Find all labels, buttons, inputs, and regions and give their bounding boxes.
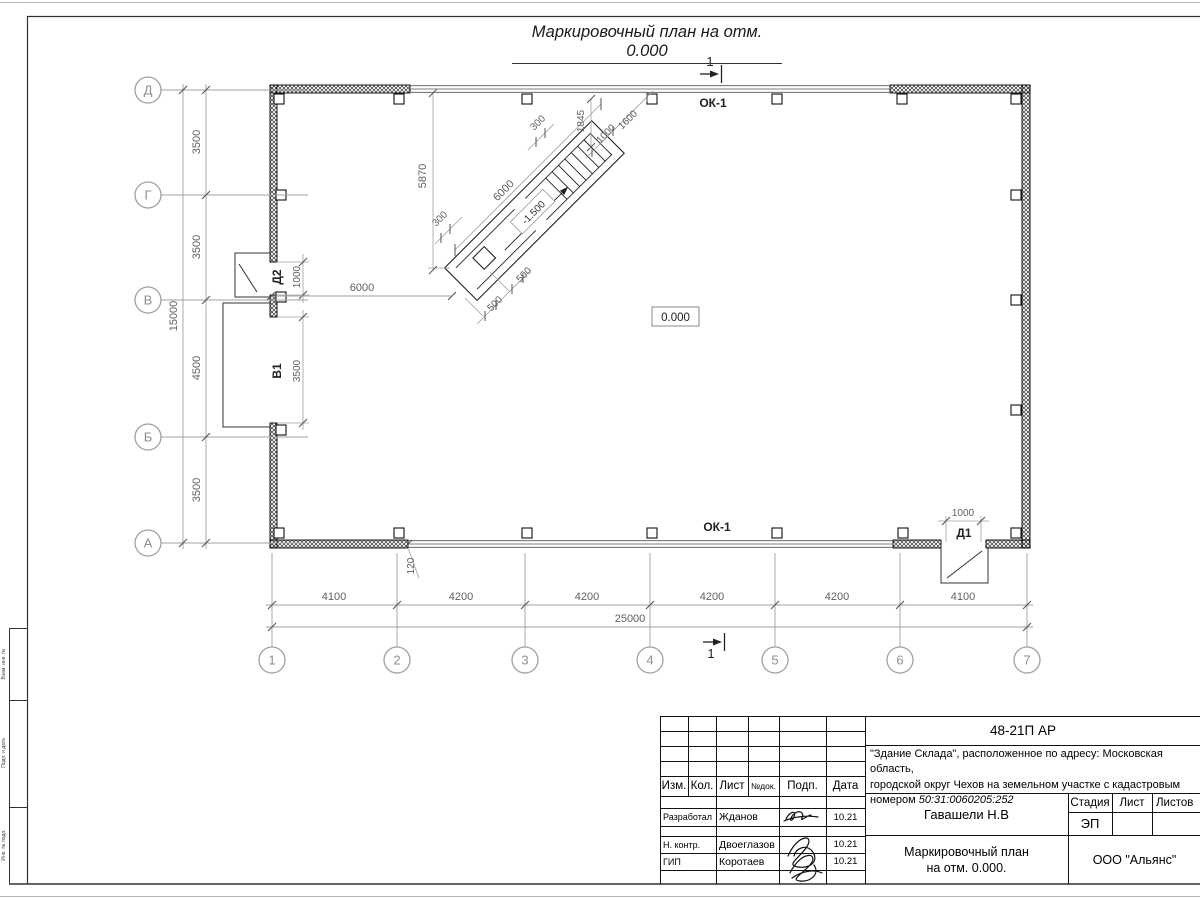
axis-row-d: Д xyxy=(144,83,153,98)
stairs-pit: -1.500 xyxy=(445,121,625,301)
axis-col-4: 4 xyxy=(646,653,653,668)
axis-col-7: 7 xyxy=(1023,653,1030,668)
tb-sheets-label: Листов xyxy=(1152,793,1200,812)
offset-120: 120 xyxy=(404,540,419,578)
axis-col-3: 3 xyxy=(521,653,528,668)
signature-gip xyxy=(790,855,822,881)
tb-name-gip: Коротаев xyxy=(716,853,782,870)
margin-strip-labels: Взам. инв. № Подп. и дата Инв. № подл. xyxy=(1,649,7,861)
axis-row-a: А xyxy=(144,536,153,551)
columns xyxy=(274,94,1021,538)
window-band-top xyxy=(410,86,890,93)
tb-col-data: Дата xyxy=(826,776,865,796)
tb-date-developer: 10.21 xyxy=(826,808,865,826)
axis-row-g: Г xyxy=(144,188,151,203)
dim-stairs-height: 5870 xyxy=(417,164,429,188)
dim-row-3: 4500 xyxy=(191,356,203,380)
signature-developer xyxy=(784,812,818,821)
tb-col-izm: Изм. xyxy=(660,776,688,796)
dim-stairs-top-width: 1600 xyxy=(616,108,640,132)
door-d2-label: Д2 xyxy=(270,269,284,285)
tb-approver: Гавашели Н.В xyxy=(865,793,1068,835)
exterior-walls xyxy=(270,85,1030,548)
dim-col-1: 4100 xyxy=(322,591,346,603)
gate-v1-label: В1 xyxy=(270,363,284,379)
axis-row-v: В xyxy=(144,293,153,308)
gate-v1 xyxy=(223,303,271,427)
tb-doc-code: 48-21П АР xyxy=(865,716,1181,745)
dim-col-2: 4200 xyxy=(449,591,473,603)
dim-stairs-s2: 500 xyxy=(485,294,505,314)
dim-col-total: 25000 xyxy=(615,613,646,625)
level-zero-text: 0.000 xyxy=(661,312,690,324)
tb-col-kol: Кол. xyxy=(688,776,716,796)
dim-d1-width: 1000 xyxy=(952,508,975,519)
window-label-bottom: ОК-1 xyxy=(703,520,731,534)
tb-date-gip: 10.21 xyxy=(826,853,865,870)
title-block: Изм. Кол. Лист №док. Подп. Дата Разработ… xyxy=(660,716,1200,884)
door-d2 xyxy=(235,253,271,297)
tb-doc-name-line1: Маркировочный план xyxy=(904,844,1029,860)
dim-col-6: 4100 xyxy=(951,591,975,603)
axis-col-5: 5 xyxy=(771,653,778,668)
dim-row-1: 3500 xyxy=(191,130,203,154)
tb-stage-value: ЭП xyxy=(1068,812,1112,835)
dim-col-4: 4200 xyxy=(700,591,724,603)
dimension-ticks xyxy=(179,86,1031,631)
window-label-top: ОК-1 xyxy=(699,96,727,110)
tb-col-list: Лист xyxy=(716,776,748,796)
door-d1-label: Д1 xyxy=(956,526,972,540)
tb-stage-label: Стадия xyxy=(1068,793,1112,812)
axis-row-b: Б xyxy=(144,430,153,445)
dimension-texts: 3500 3500 4500 3500 15000 4100 4200 4200… xyxy=(168,130,975,625)
dim-stairs-top-offset: 1000 xyxy=(594,122,618,146)
dim-row-total: 15000 xyxy=(168,301,180,332)
tb-name-developer: Жданов xyxy=(716,808,782,826)
dim-d2-width: 1000 xyxy=(292,265,303,288)
margin-label-top: Взам. инв. № xyxy=(1,649,7,680)
tb-object-line2: городской округ Чехов на земельном участ… xyxy=(870,779,1180,791)
tb-company: ООО "Альянс" xyxy=(1068,835,1200,884)
axis-lines xyxy=(161,90,1027,647)
dim-stairs-w2: 300 xyxy=(430,209,450,229)
dim-v1-width: 3500 xyxy=(292,359,303,382)
tb-doc-name-line2: на отм. 0.000. xyxy=(926,860,1006,876)
dim-col-3: 4200 xyxy=(575,591,599,603)
tb-role-gip: ГИП xyxy=(660,853,719,870)
margin-label-middle: Подп. и дата xyxy=(1,738,7,768)
axis-col-1: 1 xyxy=(268,653,275,668)
tb-col-podp: Подп. xyxy=(779,776,826,796)
drawing-sheet: Взам. инв. № Подп. и дата Инв. № подл. xyxy=(0,0,1200,900)
dim-row-4: 3500 xyxy=(191,478,203,502)
plan-title: Маркировочный план на отм. 0.000 xyxy=(512,23,782,64)
tb-role-ncontrol: Н. контр. xyxy=(660,836,719,853)
dim-stairs-run: 1845 xyxy=(576,109,587,132)
dim-offset: 120 xyxy=(406,557,417,574)
tb-name-ncontrol: Двоеглазов xyxy=(716,836,782,853)
dim-col-5: 4200 xyxy=(825,591,849,603)
level-mark-zero: 0.000 xyxy=(652,307,699,326)
axis-col-6: 6 xyxy=(896,653,903,668)
door-d1 xyxy=(941,548,988,583)
tb-date-ncontrol: 10.21 xyxy=(826,836,865,853)
window-band-bottom xyxy=(408,541,893,548)
tb-object-line1: "Здание Склада", расположенное по адресу… xyxy=(870,748,1163,775)
tb-role-developer: Разработал xyxy=(660,808,719,826)
tb-doc-name: Маркировочный план на отм. 0.000. xyxy=(865,835,1068,884)
dim-stairs-s1: 500 xyxy=(514,265,534,285)
tb-col-ndok: №док. xyxy=(748,776,779,796)
tb-sheet-label: Лист xyxy=(1112,793,1152,812)
margin-label-bottom: Инв. № подл. xyxy=(1,829,7,860)
dim-row-2: 3500 xyxy=(191,235,203,259)
section-number-bottom: 1 xyxy=(707,646,714,661)
axis-col-2: 2 xyxy=(393,653,400,668)
dim-wall-to-stairs-text: 6000 xyxy=(350,282,374,294)
